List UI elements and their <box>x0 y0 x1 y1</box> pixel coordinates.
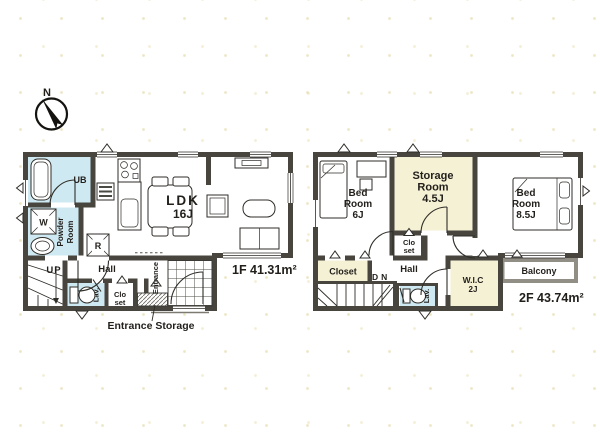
room-label-small-closet-2: set <box>404 246 415 255</box>
room-label-hall-2f: Hall <box>400 264 417 275</box>
washing-machine-label: W <box>39 218 48 228</box>
bathtub <box>31 159 51 200</box>
refrigerator-label: R <box>95 241 102 251</box>
area-label-1f: 1F 41.31m² <box>232 263 297 277</box>
entrance-storage-label: Entrance Storage <box>108 320 195 332</box>
area-label-2f: 2F 43.74m² <box>519 291 584 305</box>
side-table <box>207 195 228 217</box>
room-label-wic-2: 2J <box>469 285 478 294</box>
room-label-hall-1f: Hall <box>98 264 115 275</box>
room-label-ub: UB <box>74 175 87 185</box>
room-label-ldk: LDK <box>166 193 200 208</box>
room-label-bedroom85-2: Room <box>512 199 540 210</box>
entrance-tile-floor <box>168 261 212 307</box>
label-dn: DN <box>372 272 390 282</box>
refrigerator-symbol: R <box>87 234 109 256</box>
floor-plan-page: N <box>0 0 600 438</box>
room-label-lav-2f: Lav. <box>422 289 431 303</box>
room-label-storage-2: Room <box>417 182 448 194</box>
room-label-bedroom85-1: Bed <box>517 188 536 199</box>
room-label-ldk-size: 16J <box>173 207 193 221</box>
tv-board <box>235 158 268 168</box>
sofa <box>240 228 279 249</box>
floor-plan-2f: Bed Room 6J Storage Room 4.5J Bed Room 8… <box>301 138 595 325</box>
compass: N <box>22 82 82 138</box>
room-label-powder-2: Room <box>66 221 75 244</box>
room-label-storage-1: Storage <box>413 170 454 182</box>
room-label-entrance: Entrance <box>151 262 160 294</box>
wash-basin <box>31 238 54 255</box>
room-label-bedroom6-2: Room <box>344 199 372 210</box>
label-up: UP <box>46 265 61 276</box>
kitchen-stove <box>118 159 140 182</box>
room-label-wic-1: W.I.C <box>463 275 484 285</box>
under-floor-storage-symbol <box>97 183 114 200</box>
floor-plan-1f: W R <box>11 138 305 334</box>
room-label-closet-1f-2: set <box>115 298 126 307</box>
room-label-bedroom6-3: 6J <box>352 210 363 221</box>
washing-machine: W <box>31 209 56 234</box>
room-label-bedroom85-3: 8.5J <box>516 210 535 221</box>
room-label-lav-1f: Lav. <box>92 288 101 302</box>
north-label: N <box>43 87 51 99</box>
room-label-balcony: Balcony <box>521 266 556 276</box>
room-label-bedroom6-1: Bed <box>349 188 368 199</box>
room-label-storage-3: 4.5J <box>422 193 443 205</box>
room-label-closet-2f: Closet <box>329 267 357 277</box>
kitchen-counter-sink <box>118 182 141 230</box>
coffee-table <box>243 200 275 217</box>
room-label-powder-1: Powder <box>56 218 65 247</box>
